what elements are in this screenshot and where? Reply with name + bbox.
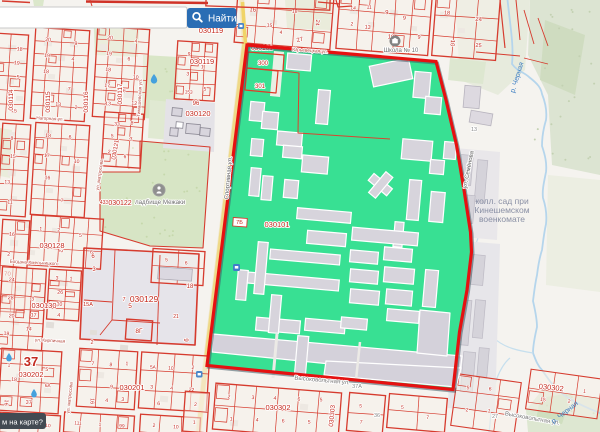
svg-text:2: 2 [74,105,77,111]
svg-text:18: 18 [444,10,451,16]
svg-text:3: 3 [129,136,132,142]
svg-text:6: 6 [68,134,71,140]
svg-text:2: 2 [227,394,230,400]
svg-text:м на карте?: м на карте? [2,418,43,427]
svg-text:10: 10 [168,366,174,372]
svg-text:5: 5 [203,86,206,92]
svg-text:21: 21 [173,314,179,320]
svg-text:030302: 030302 [265,403,290,412]
svg-text:18: 18 [3,331,9,337]
svg-text:10: 10 [173,424,179,430]
svg-text:15: 15 [10,154,16,160]
svg-text:2: 2 [90,340,93,346]
svg-text:153: 153 [184,89,193,95]
svg-text:25: 25 [475,43,482,49]
svg-text:6: 6 [157,401,160,407]
svg-text:6: 6 [297,397,300,403]
svg-text:9: 9 [417,35,421,41]
svg-text:18: 18 [17,46,23,52]
svg-text:5: 5 [16,74,19,80]
svg-text:5: 5 [79,233,82,239]
svg-text:030120: 030120 [185,109,210,118]
svg-text:24: 24 [314,19,320,26]
svg-text:8: 8 [10,136,13,142]
svg-text:030202: 030202 [18,370,43,379]
svg-text:7: 7 [67,87,70,93]
svg-text:17: 17 [44,153,50,159]
svg-text:17: 17 [31,313,37,319]
svg-text:18: 18 [105,67,111,73]
svg-text:20: 20 [107,35,113,41]
svg-text:3: 3 [121,397,124,403]
svg-text:6: 6 [127,56,130,62]
svg-text:5: 5 [308,419,311,425]
svg-text:10: 10 [448,39,455,47]
svg-text:7: 7 [60,198,63,204]
svg-text:15: 15 [540,397,547,404]
svg-text:13: 13 [55,102,61,108]
svg-text:24: 24 [9,277,15,283]
svg-text:12: 12 [131,101,137,107]
svg-text:10: 10 [56,302,62,308]
svg-text:16: 16 [88,398,94,404]
svg-text:030201: 030201 [119,383,144,392]
svg-text:1: 1 [125,361,128,367]
svg-text:96: 96 [193,101,200,107]
svg-text:16: 16 [249,7,257,14]
svg-text:4: 4 [170,386,173,392]
svg-text:18: 18 [45,133,51,139]
svg-text:18: 18 [11,377,17,383]
svg-text:9: 9 [403,15,407,21]
svg-text:28: 28 [8,295,14,301]
svg-text:3: 3 [186,71,189,77]
svg-text:300: 300 [258,61,269,67]
svg-text:9: 9 [74,41,77,47]
svg-text:11: 11 [7,200,13,206]
svg-text:7: 7 [91,361,94,367]
svg-text:13: 13 [4,179,10,185]
svg-text:13: 13 [364,24,371,30]
svg-text:2: 2 [191,365,194,371]
svg-text:10: 10 [73,159,79,165]
svg-text:24: 24 [475,17,483,24]
svg-text:16: 16 [44,175,50,181]
svg-text:4: 4 [71,57,74,63]
svg-text:433: 433 [100,200,109,206]
svg-text:16: 16 [2,399,8,405]
svg-text:030128: 030128 [39,241,64,250]
svg-text:16: 16 [9,232,15,238]
svg-text:030115: 030115 [45,91,52,113]
svg-text:4: 4 [57,313,60,319]
svg-text:030114: 030114 [8,89,15,111]
svg-text:1: 1 [39,226,42,232]
svg-text:27: 27 [492,414,498,420]
svg-text:ладбище Межаки: ладбище Межаки [135,199,186,206]
svg-text:2: 2 [57,227,60,233]
svg-text:Найти: Найти [208,14,237,25]
svg-text:4: 4 [256,417,259,423]
svg-text:4: 4 [105,398,108,404]
svg-text:5: 5 [128,303,132,310]
svg-text:030101: 030101 [264,220,289,229]
svg-text:8: 8 [109,362,112,368]
svg-text:37: 37 [24,354,38,369]
svg-text:1: 1 [230,416,233,422]
svg-text:99: 99 [119,423,125,429]
svg-text:19: 19 [44,53,50,59]
svg-text:13: 13 [105,101,111,107]
svg-text:030122: 030122 [108,200,131,207]
svg-text:33: 33 [114,121,120,127]
svg-text:1: 1 [69,276,72,282]
svg-text:37А: 37А [352,384,362,390]
svg-text:7: 7 [122,297,125,303]
svg-text:4: 4 [273,396,276,402]
svg-text:3: 3 [150,385,153,391]
svg-text:9: 9 [110,384,113,390]
svg-text:15А: 15А [83,302,93,308]
svg-text:030116: 030116 [83,91,90,113]
svg-text:Школа № 10: Школа № 10 [384,47,419,54]
svg-text:3: 3 [251,395,254,401]
svg-text:7Б: 7Б [236,220,243,226]
svg-text:19: 19 [14,60,20,66]
svg-text:111: 111 [74,420,82,426]
svg-text:15: 15 [266,23,272,29]
svg-text:19: 19 [106,51,112,57]
svg-text:8: 8 [130,120,133,126]
svg-text:военкомате: военкомате [479,214,525,224]
svg-text:5: 5 [319,397,322,403]
svg-text:030117: 030117 [117,83,124,105]
svg-text:2: 2 [7,252,10,258]
svg-text:301: 301 [255,84,266,90]
svg-text:36: 36 [374,413,380,419]
svg-text:17: 17 [104,83,110,89]
svg-text:8Г: 8Г [135,328,143,335]
svg-text:6: 6 [282,418,285,424]
svg-text:14: 14 [26,326,32,332]
svg-text:3: 3 [55,275,58,281]
svg-text:4: 4 [134,39,137,45]
svg-text:20: 20 [45,37,51,43]
svg-text:18: 18 [43,69,49,75]
svg-text:20: 20 [8,313,14,319]
svg-text:030119: 030119 [190,57,214,66]
svg-text:37: 37 [25,400,31,406]
svg-text:030129: 030129 [130,294,159,304]
svg-text:11: 11 [366,5,372,11]
svg-text:030130: 030130 [31,301,56,310]
svg-text:26: 26 [57,290,63,296]
svg-text:13: 13 [471,127,477,133]
svg-text:5: 5 [45,367,48,373]
svg-text:18: 18 [187,284,194,290]
